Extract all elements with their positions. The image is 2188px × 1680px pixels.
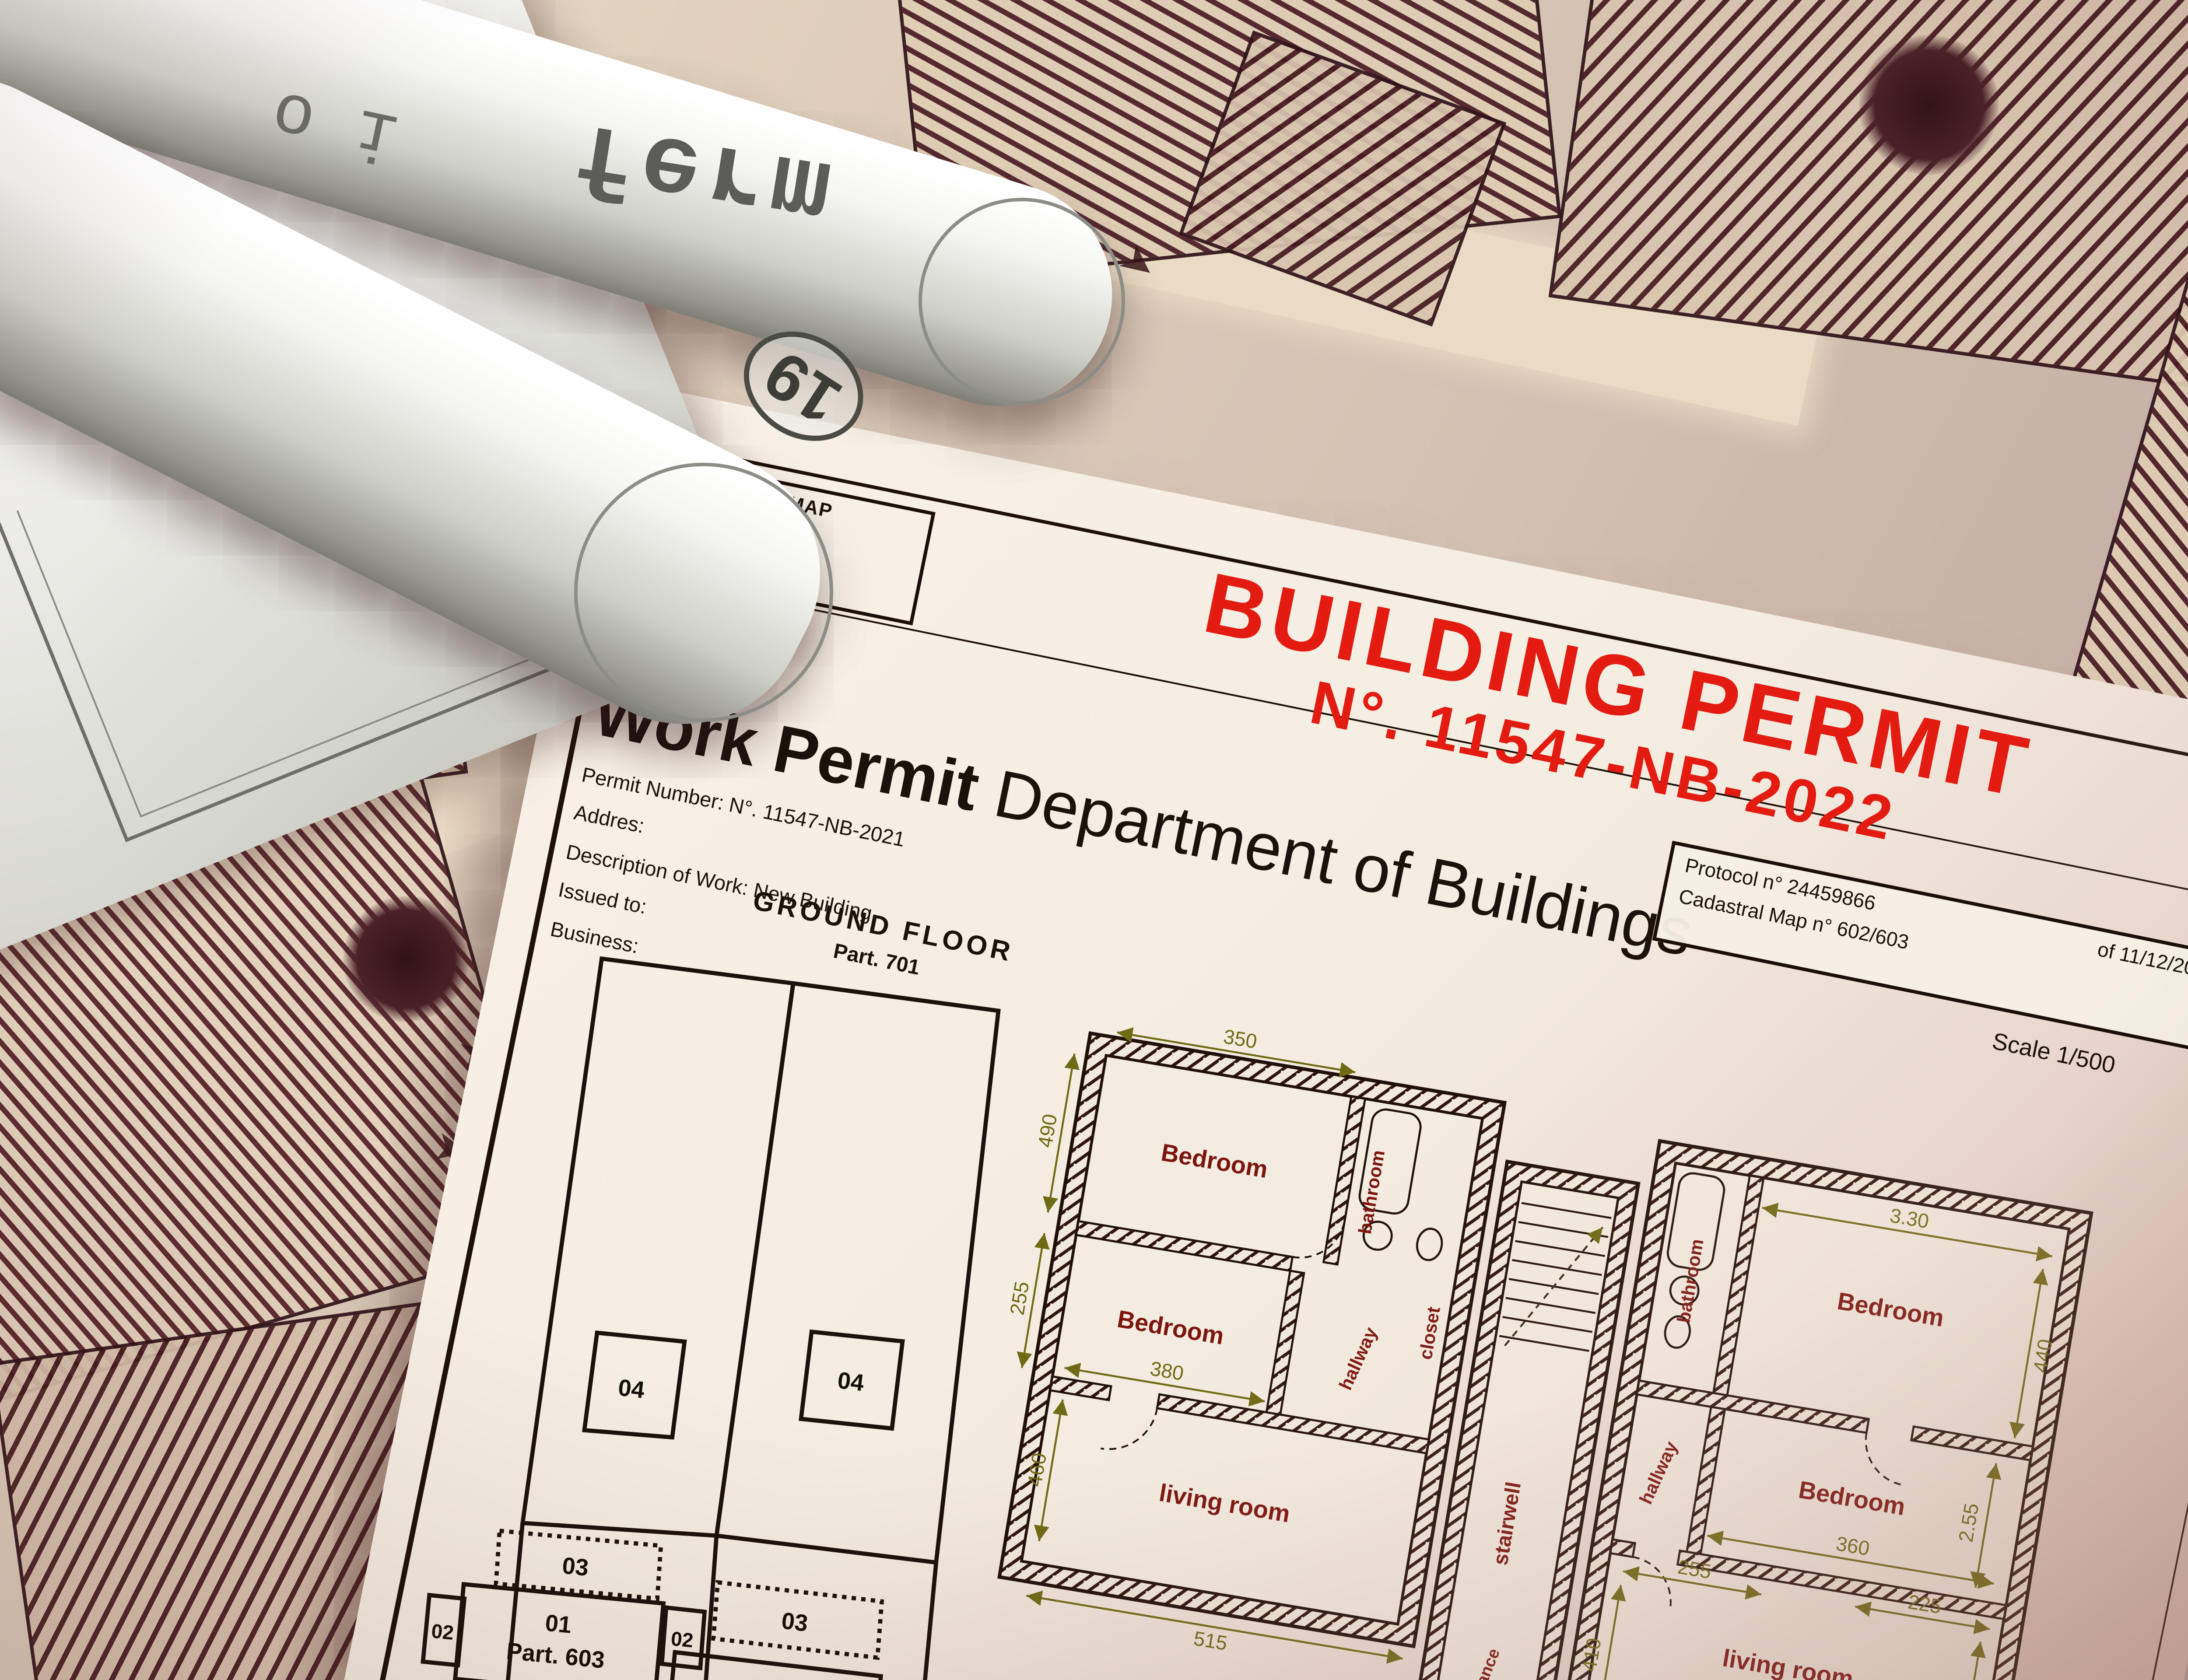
photo-of-building-permit: ➤ ➤ ➤ ➤ ferm o i 19 CADASTRAL MAP WITH P…	[0, 0, 2188, 1680]
dim-515: 515	[1192, 1627, 1229, 1655]
site-plan-tree	[343, 896, 469, 1022]
floor-plan: 350 490 255 380 460 515 3.30 440 360 2.5…	[932, 986, 2188, 1680]
unit-01-label: 01	[544, 1610, 573, 1638]
dim-490: 490	[1034, 1112, 1062, 1149]
unit-02-label: 02	[430, 1619, 455, 1644]
dim-255: 255	[1005, 1280, 1033, 1316]
part-603-label: Part. 603	[505, 1638, 606, 1673]
unit-04-label: 04	[617, 1374, 646, 1403]
roll-mirrored-text: ferm	[567, 96, 845, 248]
unit-03-label: 03	[561, 1553, 590, 1581]
roll-mirrored-text: o i	[266, 70, 405, 173]
site-plan-tree	[1859, 35, 1999, 175]
dim-350: 350	[1222, 1025, 1259, 1053]
plot-outline	[488, 945, 828, 1561]
unit-04-label: 04	[836, 1367, 865, 1396]
unit-02-label: 02	[670, 1627, 694, 1652]
unit-03-label: 03	[780, 1607, 809, 1636]
apartment-walls	[985, 1033, 2093, 1680]
